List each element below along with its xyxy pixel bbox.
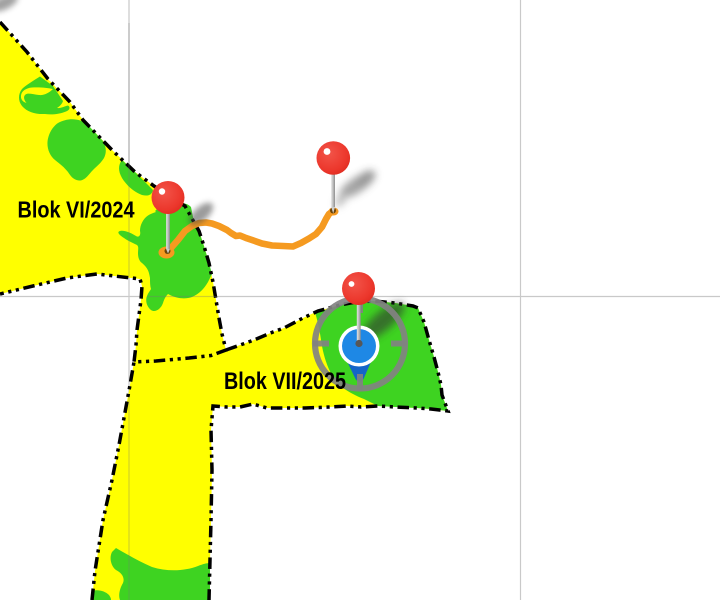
svg-text:Blok VI/2024: Blok VI/2024 bbox=[18, 197, 135, 223]
svg-text:Blok VII/2025: Blok VII/2025 bbox=[224, 368, 346, 395]
